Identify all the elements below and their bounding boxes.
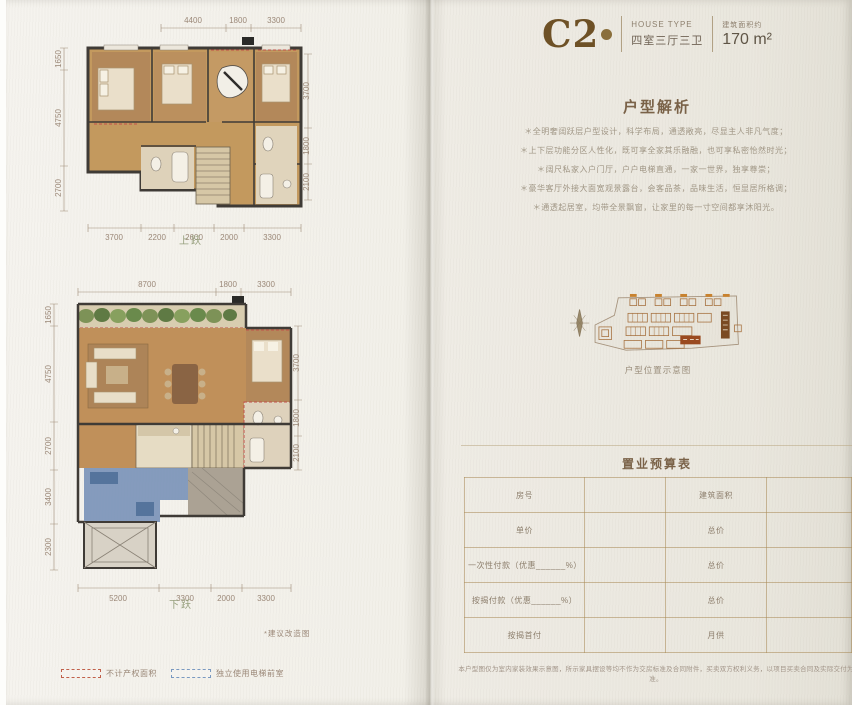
dim-label: 3700 xyxy=(292,354,301,372)
table-row: 按揭首付 月供 xyxy=(465,618,852,653)
sink xyxy=(283,180,291,188)
cell-label: 建筑面积 xyxy=(666,478,767,513)
cell-label: 总价 xyxy=(666,583,767,618)
dim-label: 4400 xyxy=(184,16,202,25)
cell-blank xyxy=(584,513,665,548)
lower-plan-label: 下跃 xyxy=(36,596,326,611)
cell-label: 月供 xyxy=(666,618,767,653)
cell-label: 房号 xyxy=(465,478,585,513)
cell-label: 按揭首付 xyxy=(465,618,585,653)
cell-blank xyxy=(766,583,851,618)
analysis-bullet: ＊豪华客厅外接大面宽观景露台，会客品茶，品味生活，恒显居所格调； xyxy=(454,179,852,198)
pillow xyxy=(254,342,264,351)
cell-blank xyxy=(766,618,851,653)
analysis-bullet: ＊阔尺私家入户门厅，户户电梯直通，一家一世界，独享尊崇； xyxy=(454,160,852,179)
cell-blank xyxy=(584,548,665,583)
unit-code: C2 xyxy=(542,16,599,53)
cell-label: 总价 xyxy=(666,548,767,583)
stairs xyxy=(192,424,244,468)
budget-table: 房号 建筑面积 单价 总价 一次性付款（优惠______%） 总价 按揭付款（优… xyxy=(464,477,852,653)
budget-title: 置业预算表 xyxy=(461,455,852,472)
cell-blank xyxy=(584,583,665,618)
toilet xyxy=(263,137,273,151)
legend-label: 不计产权面积 xyxy=(106,668,157,679)
header-divider xyxy=(621,16,622,52)
dim-label: 1650 xyxy=(44,306,53,324)
lobby-furniture xyxy=(136,502,154,516)
pillow xyxy=(268,342,278,351)
cell-label: 总价 xyxy=(666,513,767,548)
window xyxy=(262,45,290,50)
kitchen-counter xyxy=(138,426,190,436)
unit-header: C2 HOUSE TYPE 四室三厅三卫 建筑面积约 170 m² xyxy=(542,8,772,60)
cell-label: 一次性付款（优惠______%） xyxy=(465,548,585,583)
house-type-label: HOUSE TYPE xyxy=(631,20,703,29)
upper-plan-label: 上跃 xyxy=(46,232,336,247)
window xyxy=(104,45,138,50)
bathtub xyxy=(250,438,264,462)
legend-item: 不计产权面积 xyxy=(61,668,157,679)
sofa-set xyxy=(86,344,148,408)
section-separator xyxy=(461,445,852,446)
area-block: 建筑面积约 170 m² xyxy=(722,20,772,49)
dim-label: 1800 xyxy=(219,280,237,289)
brochure-page: C2 HOUSE TYPE 四室三厅三卫 建筑面积约 170 m² 户型解析 ＊… xyxy=(6,0,852,705)
table-row: 房号 建筑面积 xyxy=(465,478,852,513)
compass-icon xyxy=(570,309,589,336)
lower-plan-body xyxy=(78,304,291,568)
cell-label: 按揭付款（优惠______%） xyxy=(465,583,585,618)
bathtub xyxy=(260,174,273,198)
analysis-title: 户型解析 xyxy=(461,96,852,117)
dim-label: 2700 xyxy=(54,179,63,197)
cell-blank xyxy=(766,513,851,548)
shaft-marker xyxy=(242,37,254,45)
lobby-furniture xyxy=(90,472,118,484)
disclaimer-text: 本户型图仅为室内家装效果示意图，所示家具摆设等均不作为交房标准及合同附件，买卖双… xyxy=(456,663,852,683)
cell-blank xyxy=(584,618,665,653)
kitchen-sink xyxy=(173,428,179,434)
analysis-bullet: ＊通透起居室，均带全景飘窗，让家里的每一寸空间都享沐阳光。 xyxy=(454,198,852,217)
legend-item: 独立使用电梯前室 xyxy=(171,668,284,679)
analysis-bullet: ＊全明奢阔跃层户型设计，科学布局，通透敞亮，尽显主人非凡气度； xyxy=(454,122,852,141)
plan-legend: 不计产权面积 独立使用电梯前室 xyxy=(61,668,284,679)
elevator-shaft xyxy=(84,522,156,568)
dim-label: 2100 xyxy=(302,173,311,191)
renovation-note: *建议改造图 xyxy=(264,628,310,639)
dim-label: 3300 xyxy=(267,16,285,25)
dim-label: 2700 xyxy=(44,437,53,455)
dim-label: 1800 xyxy=(292,409,301,427)
site-location-diagram xyxy=(566,286,750,362)
red-dashed-legend-icon xyxy=(61,669,101,678)
bathtub xyxy=(172,152,188,182)
house-type-block: HOUSE TYPE 四室三厅三卫 xyxy=(631,20,703,48)
site-caption: 户型位置示意图 xyxy=(566,364,750,376)
dim-label: 1800 xyxy=(302,137,311,155)
toilet xyxy=(151,157,161,171)
dining-table xyxy=(165,364,206,404)
area-value: 170 m² xyxy=(722,31,772,49)
dim-label: 3300 xyxy=(257,280,275,289)
page-fold xyxy=(425,0,435,705)
upper-plan-body xyxy=(88,45,301,206)
dim-label: 8700 xyxy=(138,280,156,289)
window xyxy=(160,45,188,50)
legend-label: 独立使用电梯前室 xyxy=(216,668,284,679)
table-row: 按揭付款（优惠______%） 总价 xyxy=(465,583,852,618)
table-row: 一次性付款（优惠______%） 总价 xyxy=(465,548,852,583)
dim-label: 3700 xyxy=(302,82,311,100)
cell-blank xyxy=(766,478,851,513)
table-row: 单价 总价 xyxy=(465,513,852,548)
cell-label: 单价 xyxy=(465,513,585,548)
dim-label: 2100 xyxy=(292,444,301,462)
hallway xyxy=(78,424,136,468)
blue-dashed-legend-icon xyxy=(171,669,211,678)
area-label: 建筑面积约 xyxy=(722,20,772,30)
cell-blank xyxy=(584,478,665,513)
dim-label: 3400 xyxy=(44,488,53,506)
stairs xyxy=(196,147,230,204)
dim-label: 1800 xyxy=(229,16,247,25)
dim-label: 2300 xyxy=(44,538,53,556)
dim-label: 4750 xyxy=(54,109,63,127)
dim-label: 1650 xyxy=(54,50,63,68)
floorplan-lower: 8700 1800 3300 1650 4750 2700 3400 2300 … xyxy=(36,270,326,615)
floorplan-upper: 4400 1800 3300 1650 4750 2700 3700 1800 … xyxy=(46,6,336,251)
header-divider xyxy=(712,16,713,52)
unit-badge-icon xyxy=(601,29,612,40)
house-type-value: 四室三厅三卫 xyxy=(631,32,703,48)
dim-label: 4750 xyxy=(44,365,53,383)
analysis-bullet: ＊上下层功能分区人性化，既可享全家其乐融融，也可享私密怡然时光； xyxy=(454,141,852,160)
analysis-bullets: ＊全明奢阔跃层户型设计，科学布局，通透敞亮，尽显主人非凡气度； ＊上下层功能分区… xyxy=(454,122,852,217)
cell-blank xyxy=(766,548,851,583)
